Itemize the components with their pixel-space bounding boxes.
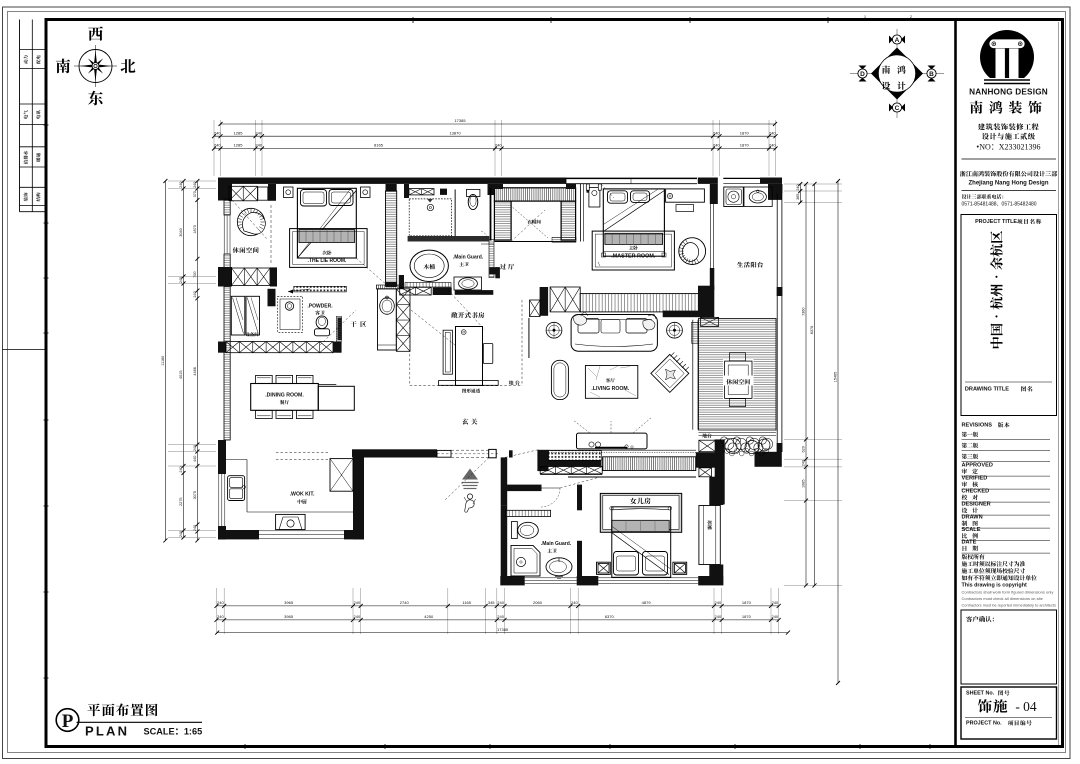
svg-text:240: 240 <box>179 466 183 472</box>
svg-text:345: 345 <box>488 600 495 605</box>
svg-text:6370: 6370 <box>605 614 615 619</box>
svg-text:DRAWN: DRAWN <box>962 515 983 521</box>
svg-text:3075: 3075 <box>193 491 197 499</box>
svg-text:B: B <box>929 71 934 78</box>
svg-text:1870: 1870 <box>742 614 752 619</box>
svg-text:240: 240 <box>179 277 183 283</box>
svg-text:1085: 1085 <box>802 480 806 488</box>
svg-text:2275: 2275 <box>179 498 183 506</box>
svg-text:3965: 3965 <box>284 600 294 605</box>
svg-text:240: 240 <box>769 130 776 135</box>
svg-text:240: 240 <box>217 600 224 605</box>
svg-text:2740: 2740 <box>400 600 410 605</box>
svg-text:13870: 13870 <box>449 130 461 135</box>
svg-text:620: 620 <box>802 446 806 452</box>
svg-text:8376: 8376 <box>810 326 814 334</box>
svg-text:1285: 1285 <box>234 130 244 135</box>
svg-text:17385: 17385 <box>454 118 466 123</box>
svg-text:240: 240 <box>772 614 779 619</box>
svg-text:.LIVING ROOM.: .LIVING ROOM. <box>591 386 629 392</box>
svg-text:11180: 11180 <box>161 356 165 366</box>
svg-text:3965: 3965 <box>284 614 294 619</box>
svg-text:1285: 1285 <box>234 143 244 148</box>
svg-text:.DINING ROOM.: .DINING ROOM. <box>265 393 304 399</box>
svg-text:Contractors must be reported i: Contractors must be reported immediately… <box>962 603 1057 608</box>
svg-text:1165: 1165 <box>462 600 471 605</box>
svg-text:240: 240 <box>193 291 197 297</box>
svg-text:P: P <box>62 711 74 732</box>
svg-text:240: 240 <box>802 460 806 466</box>
svg-text:240: 240 <box>769 143 776 148</box>
svg-text:240: 240 <box>497 614 504 619</box>
svg-text:SCALE: SCALE <box>962 527 981 533</box>
svg-text:240: 240 <box>715 614 722 619</box>
svg-text:- 04: - 04 <box>1015 699 1037 714</box>
svg-text:240: 240 <box>713 143 720 148</box>
svg-text:.WOK KIT.: .WOK KIT. <box>290 492 315 498</box>
svg-text:Contractors shall work form fi: Contractors shall work form figured dime… <box>962 590 1054 595</box>
svg-text:A: A <box>895 37 900 44</box>
svg-text:PROJECT No.: PROJECT No. <box>966 721 1002 727</box>
svg-text:8165: 8165 <box>374 143 384 148</box>
svg-text:700: 700 <box>193 272 197 278</box>
svg-text:4015: 4015 <box>179 371 183 379</box>
svg-text:7360: 7360 <box>802 307 806 315</box>
svg-text:240: 240 <box>495 143 502 148</box>
svg-text:PLAN: PLAN <box>85 724 129 739</box>
svg-text:1870: 1870 <box>740 130 750 135</box>
svg-text:SHEET No.: SHEET No. <box>966 691 995 697</box>
svg-text:REVISIONS: REVISIONS <box>962 423 993 429</box>
svg-text:240: 240 <box>214 143 221 148</box>
svg-text:•NO：X233021396: •NO：X233021396 <box>976 143 1040 152</box>
svg-text:1870: 1870 <box>740 143 750 148</box>
svg-text:4466: 4466 <box>193 367 197 375</box>
svg-text:240: 240 <box>193 445 197 451</box>
svg-text:240: 240 <box>193 182 197 188</box>
svg-text:.Main Guard.: .Main Guard. <box>453 255 484 261</box>
svg-text:1870: 1870 <box>742 600 752 605</box>
svg-text:C: C <box>895 105 900 112</box>
svg-text:240: 240 <box>217 614 224 619</box>
svg-text:240: 240 <box>354 600 361 605</box>
svg-text:240: 240 <box>255 130 262 135</box>
svg-text:240: 240 <box>354 614 361 619</box>
svg-text:.Main Guard.: .Main Guard. <box>541 541 572 547</box>
svg-text:3040: 3040 <box>179 228 183 236</box>
svg-text:D: D <box>860 71 865 78</box>
svg-text:240: 240 <box>772 600 779 605</box>
svg-text:PROJECT TITLE: PROJECT TITLE <box>975 219 1017 225</box>
svg-text:DRAWING TITLE: DRAWING TITLE <box>965 387 1009 393</box>
svg-text:NANHONG DESIGN: NANHONG DESIGN <box>969 88 1048 97</box>
svg-text:240: 240 <box>179 531 183 537</box>
svg-text:240: 240 <box>193 525 197 531</box>
svg-text:SCALE：1:65: SCALE：1:65 <box>144 727 203 737</box>
svg-text:0571-85481488、0571-85482480: 0571-85481488、0571-85482480 <box>962 202 1037 208</box>
svg-text:240: 240 <box>497 600 504 605</box>
svg-text:240: 240 <box>214 130 221 135</box>
svg-text:Zhejiang Nang Hong Design: Zhejiang Nang Hong Design <box>968 181 1048 187</box>
svg-text:17385: 17385 <box>497 627 509 632</box>
svg-text:VERIFIED: VERIFIED <box>962 476 988 482</box>
svg-text:1870: 1870 <box>193 225 197 233</box>
svg-text:This drawing is copyright: This drawing is copyright <box>962 583 1027 589</box>
svg-text:Contractors must check all dim: Contractors must check all dimensions on… <box>962 596 1044 601</box>
svg-text:440: 440 <box>193 456 197 462</box>
svg-text:240: 240 <box>715 600 722 605</box>
svg-text:365: 365 <box>796 194 800 200</box>
svg-text:240: 240 <box>571 600 578 605</box>
svg-text:15465: 15465 <box>834 372 838 383</box>
svg-text:.MASTER ROOM.: .MASTER ROOM. <box>611 254 656 260</box>
svg-text:.THE LIE ROOM.: .THE LIE ROOM. <box>308 258 348 264</box>
svg-text:CHECKED: CHECKED <box>962 489 990 495</box>
svg-text:240: 240 <box>179 182 183 188</box>
svg-text:.POWDER.: .POWDER. <box>307 304 333 310</box>
svg-text:DESIGNER: DESIGNER <box>962 502 991 508</box>
svg-text:4879: 4879 <box>642 600 652 605</box>
svg-text:240: 240 <box>713 130 720 135</box>
svg-text:APPROVED: APPROVED <box>962 463 993 469</box>
svg-text:4250: 4250 <box>424 614 434 619</box>
svg-text:240: 240 <box>255 143 262 148</box>
svg-text:240: 240 <box>796 184 800 190</box>
svg-text:2060: 2060 <box>533 600 543 605</box>
svg-text:370: 370 <box>193 191 197 197</box>
svg-text:DATE: DATE <box>962 540 977 546</box>
